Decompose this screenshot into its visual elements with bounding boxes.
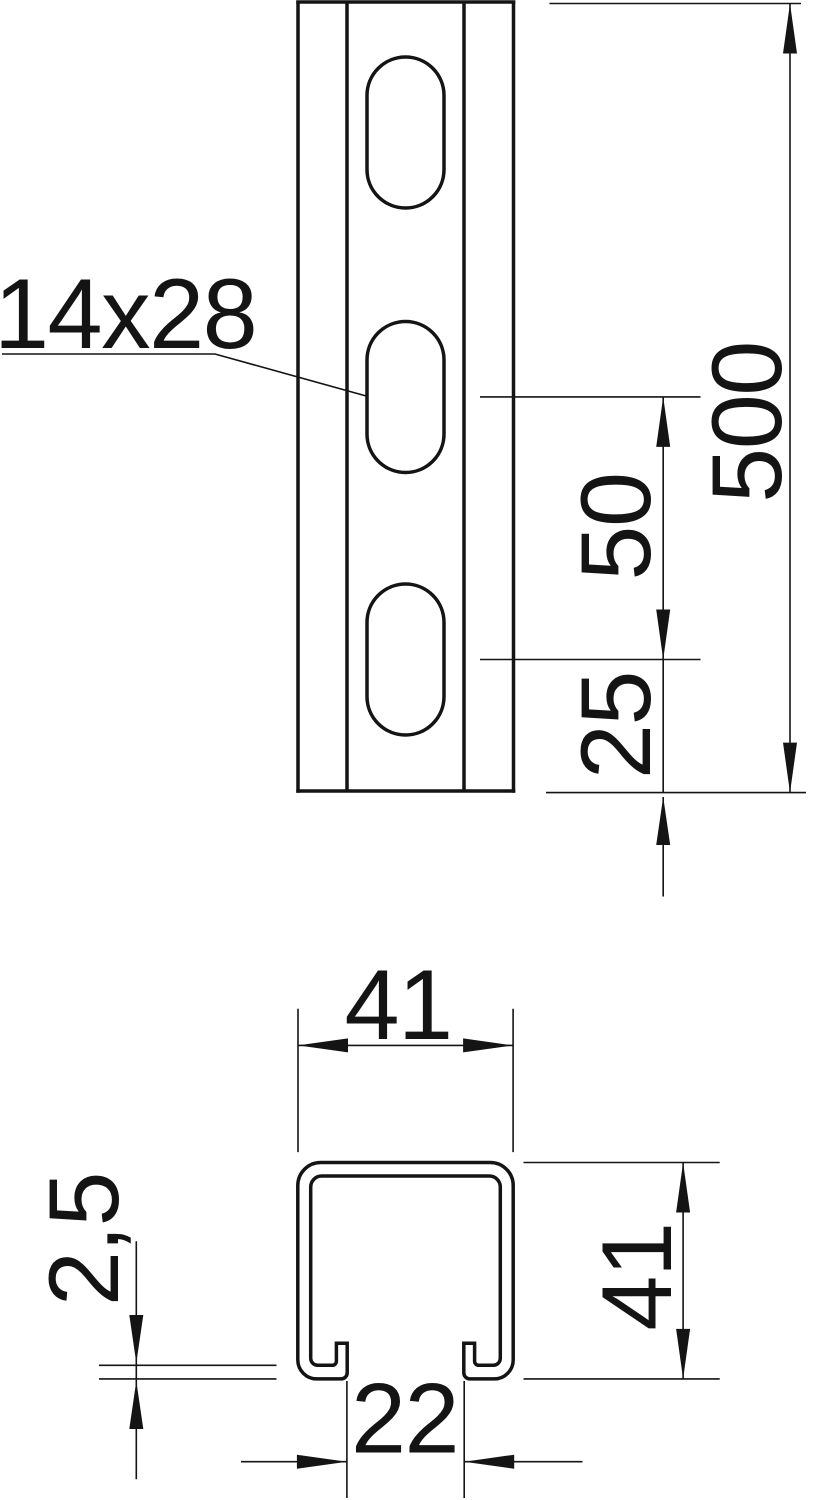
svg-text:25: 25 bbox=[560, 672, 671, 779]
svg-text:41: 41 bbox=[344, 949, 451, 1060]
svg-text:22: 22 bbox=[351, 1363, 458, 1474]
svg-text:2,5: 2,5 bbox=[28, 1173, 139, 1306]
svg-text:41: 41 bbox=[581, 1223, 692, 1330]
svg-text:14x28: 14x28 bbox=[0, 258, 256, 369]
svg-text:50: 50 bbox=[560, 473, 671, 580]
svg-text:500: 500 bbox=[691, 342, 802, 503]
